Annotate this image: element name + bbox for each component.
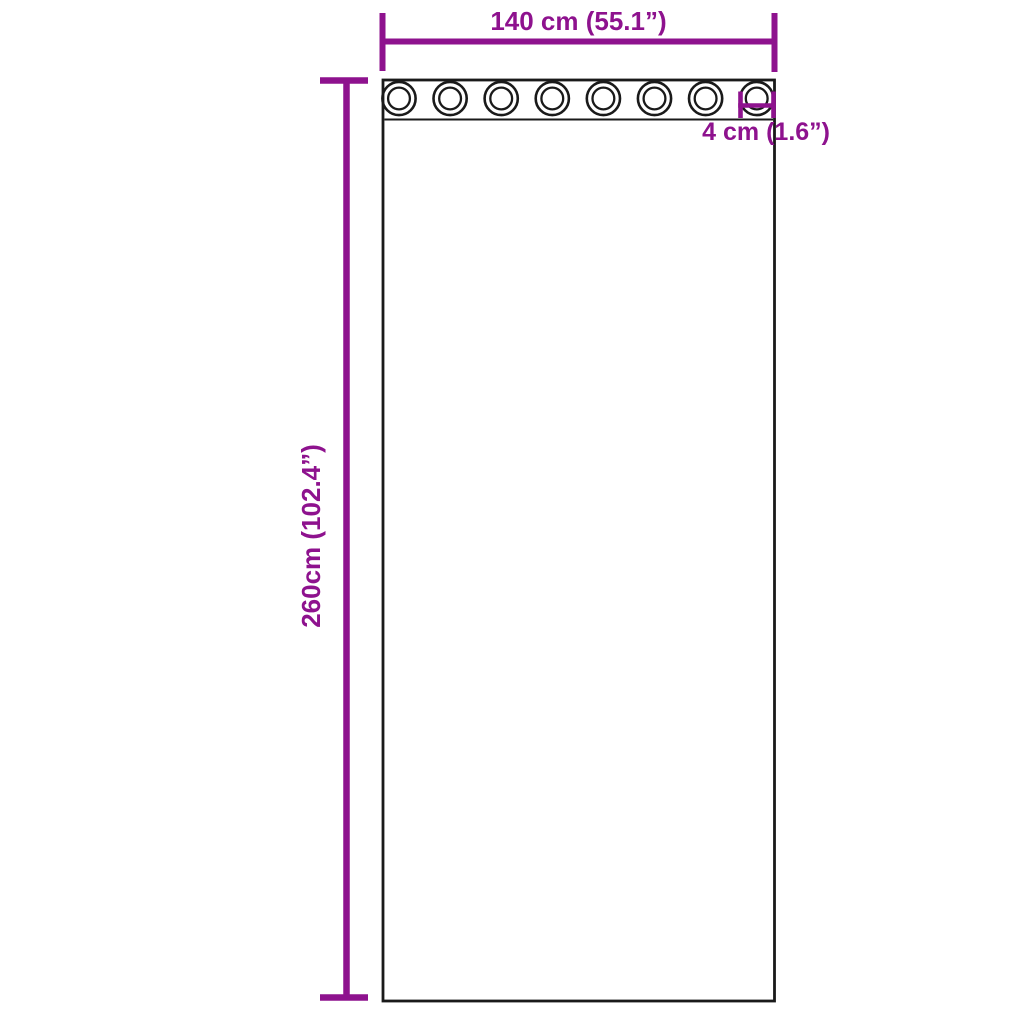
curtain-outline [383,80,775,1001]
grommet-size-label: 4 cm (1.6”) [630,119,830,145]
curtain-panel [382,80,774,1001]
height-dimension [320,81,368,998]
width-dimension-label: 140 cm (55.1”) [382,8,775,34]
height-dimension-label: 260cm (102.4”) [295,376,327,696]
product-dimension-diagram: 140 cm (55.1”) 260cm (102.4”) 4 cm (1.6”… [0,0,1024,1024]
curtain-diagram-svg [0,0,1024,1024]
